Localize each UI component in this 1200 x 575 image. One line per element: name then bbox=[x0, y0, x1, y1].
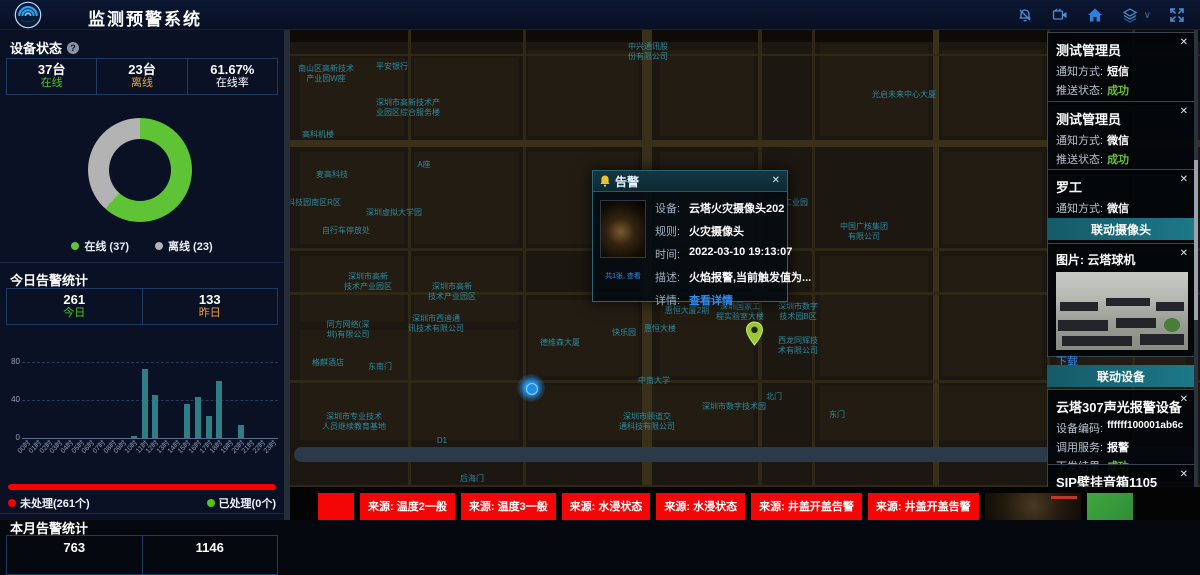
alert-ticker-bar: 来源: 温度2一般来源: 温度3一般来源: 水浸状态来源: 水浸状态来源: 井盖… bbox=[290, 487, 1200, 520]
bar-slot: 01时 bbox=[33, 352, 44, 438]
today-alarm-title: 今日告警统计 bbox=[10, 270, 88, 289]
bar-slot: 14时 bbox=[171, 352, 182, 438]
map-label: 东南门 bbox=[368, 362, 392, 372]
map-label: 中南大学 bbox=[638, 376, 670, 386]
notification-card: ✕ 测试管理员 通知方式:微信 推送状态:成功 bbox=[1047, 101, 1195, 176]
map-label: 深圳市数字技术园 bbox=[702, 402, 766, 412]
fullscreen-icon[interactable] bbox=[1168, 6, 1186, 24]
right-notification-panel: ✕ 测试管理员 通知方式:短信 推送状态:成功 ✕ 测试管理员 通知方式:微信 … bbox=[1047, 30, 1195, 520]
device-status-donut-chart bbox=[88, 118, 192, 222]
bar-slot: 16时 bbox=[193, 352, 204, 438]
page-title: 监测预警系统 bbox=[88, 5, 202, 30]
bar-slot: 15时 bbox=[182, 352, 193, 438]
app-logo-icon bbox=[14, 1, 42, 29]
close-icon[interactable]: ✕ bbox=[1180, 249, 1188, 259]
device-status-title: 设备状态 ? bbox=[10, 38, 79, 57]
bar bbox=[184, 404, 190, 438]
alert-ticker-item[interactable]: 来源: 井盖开盖告警 bbox=[868, 493, 979, 520]
bar-slot: 23时 bbox=[267, 352, 278, 438]
layers-icon[interactable] bbox=[1121, 6, 1139, 24]
ticker-snapshot-dark[interactable] bbox=[985, 493, 1081, 520]
bar bbox=[216, 381, 222, 438]
map-label: 快乐园 bbox=[612, 328, 636, 338]
bar-slot: 17时 bbox=[203, 352, 214, 438]
map-label: 深圳市高新 技术产业园区 bbox=[344, 272, 392, 292]
bar-slot: 21时 bbox=[246, 352, 257, 438]
map-label: 深圳市高新技术产 业园区综合服务楼 bbox=[376, 98, 440, 118]
bar-slot: 04时 bbox=[65, 352, 76, 438]
map-label: 北门 bbox=[766, 392, 782, 402]
map-label: 光启未来中心大厦 bbox=[872, 90, 936, 100]
stat-today: 261 今日 bbox=[7, 289, 143, 324]
map-label: 东门 bbox=[829, 410, 845, 420]
bar-slot: 12时 bbox=[150, 352, 161, 438]
linked-camera-card: ✕ 图片: 云塔球机 下载 bbox=[1047, 243, 1195, 357]
map-label: 同方网络(深 圳)有限公司 bbox=[327, 320, 370, 340]
map-label: 中国广核集团 有限公司 bbox=[840, 222, 888, 242]
camera-snapshot-image[interactable] bbox=[1056, 272, 1188, 350]
alarm-description: 火焰报警,当前触发值为... bbox=[689, 269, 811, 285]
bar bbox=[142, 369, 148, 438]
map-label: 自行车停放处 bbox=[322, 226, 370, 236]
unhandled-dot bbox=[8, 499, 16, 507]
bar-slot: 03时 bbox=[54, 352, 65, 438]
alert-ticker-item[interactable]: 来源: 温度3一般 bbox=[461, 493, 556, 520]
map-label: 深圳虚拟大学园 bbox=[366, 208, 422, 218]
alert-ticker-item[interactable]: 来源: 水浸状态 bbox=[656, 493, 745, 520]
map-label: 中兴通讯股 份有限公司 bbox=[628, 42, 668, 62]
alert-ticker-item[interactable]: 来源: 井盖开盖告警 bbox=[751, 493, 862, 520]
unhandled-progress-bar bbox=[8, 484, 276, 490]
home-icon[interactable] bbox=[1086, 6, 1104, 24]
offline-legend-dot bbox=[155, 242, 163, 250]
help-icon[interactable]: ? bbox=[67, 42, 79, 54]
alarm-popup-header: 告警 ✕ bbox=[593, 171, 787, 192]
map-label: 平安银行 bbox=[376, 62, 408, 72]
handled-dot bbox=[207, 499, 215, 507]
map-label: 深圳市高新 技术产业园区 bbox=[428, 282, 476, 302]
handled-legend: 未处理(261个) 已处理(0个) bbox=[8, 495, 276, 511]
map-label: A座 bbox=[417, 160, 430, 170]
linked-devices-header: 联动设备 bbox=[1047, 365, 1195, 387]
bar-slot: 06时 bbox=[86, 352, 97, 438]
alarm-location-pin[interactable] bbox=[745, 321, 764, 347]
map-label: 后海门 bbox=[460, 474, 484, 484]
alert-ticker-item[interactable]: 来源: 水浸状态 bbox=[562, 493, 651, 520]
donut-legend: 在线 (37) 离线 (23) bbox=[0, 238, 284, 254]
alert-ticker-item[interactable] bbox=[318, 493, 354, 520]
map-label: 深圳市专业技术 人员继续教育基地 bbox=[322, 412, 386, 432]
bar-slot: 00时 bbox=[22, 352, 33, 438]
stat-online: 37台 在线 bbox=[7, 59, 97, 94]
close-icon[interactable]: ✕ bbox=[1180, 395, 1188, 405]
alarm-snapshot-image[interactable] bbox=[600, 200, 646, 258]
bar-slot: 07时 bbox=[97, 352, 108, 438]
right-panel-scrollbar[interactable] bbox=[1194, 30, 1198, 520]
stat-yesterday: 133 昨日 bbox=[143, 289, 278, 324]
map-label: 高科机楼 bbox=[302, 130, 334, 140]
bar-slot: 10时 bbox=[129, 352, 140, 438]
map-label: 麦高科技 bbox=[316, 170, 348, 180]
close-icon[interactable]: ✕ bbox=[1180, 470, 1188, 480]
view-detail-link[interactable]: 查看详情 bbox=[689, 292, 733, 308]
alert-ticker-item[interactable]: 来源: 温度2一般 bbox=[360, 493, 455, 520]
bar-slot: 05时 bbox=[75, 352, 86, 438]
map-label: 科技园南区R区 bbox=[290, 198, 341, 208]
alarm-popup: 告警 ✕ 共1张, 查看 设备:云塔火灾摄像头202 规则:火灾摄像头 时间:2… bbox=[592, 170, 788, 302]
chevron-down-icon[interactable]: ∨ bbox=[1144, 10, 1151, 21]
map-label: 南山区高新技术 产业园W座 bbox=[298, 64, 354, 84]
bar-slot: 02时 bbox=[43, 352, 54, 438]
close-icon[interactable]: ✕ bbox=[772, 176, 780, 186]
bar-slot: 13时 bbox=[161, 352, 172, 438]
bar-slot: 19时 bbox=[225, 352, 236, 438]
bar-slot: 20时 bbox=[235, 352, 246, 438]
bar-slot: 09时 bbox=[118, 352, 129, 438]
linked-camera-header: 联动摄像头 bbox=[1047, 218, 1195, 240]
bar-slot: 11时 bbox=[139, 352, 150, 438]
map-label: 深圳市西迪通 讯技术有限公司 bbox=[408, 314, 464, 334]
today-alarm-table: 261 今日 133 昨日 bbox=[6, 288, 278, 325]
alarm-device: 云塔火灾摄像头202 bbox=[689, 200, 784, 216]
device-status-table: 37台 在线 23台 离线 61.67% 在线率 bbox=[6, 58, 278, 95]
device-location-dot[interactable] bbox=[517, 374, 545, 402]
bar-slot: 22时 bbox=[257, 352, 268, 438]
bar-slot: 08时 bbox=[107, 352, 118, 438]
alarm-time: 2022-03-10 19:13:07 bbox=[689, 246, 792, 262]
map-label: D1 bbox=[437, 436, 447, 446]
bar bbox=[206, 416, 212, 438]
bar bbox=[238, 425, 244, 438]
bar bbox=[152, 395, 158, 438]
map-label: 惠恒大楼 bbox=[644, 324, 676, 334]
map-label: 西龙同辉技 术有限公司 bbox=[778, 336, 818, 356]
bar bbox=[195, 397, 201, 438]
snapshot-view-link[interactable]: 共1张, 查看 bbox=[600, 271, 646, 281]
left-stats-panel: 设备状态 ? 37台 在线 23台 离线 61.67% 在线率 在线 (37) … bbox=[0, 30, 290, 520]
map-label: 德维森大厦 bbox=[540, 338, 580, 348]
stat-online-rate: 61.67% 在线率 bbox=[188, 59, 277, 94]
bar-slot: 18时 bbox=[214, 352, 225, 438]
map-label: 格麒酒店 bbox=[312, 358, 344, 368]
bell-muted-icon[interactable] bbox=[1016, 6, 1034, 24]
map-label: 深圳市颐道交 通科技有限公司 bbox=[619, 412, 675, 432]
video-camera-icon[interactable] bbox=[1051, 6, 1069, 24]
online-legend-dot bbox=[71, 242, 79, 250]
stat-offline: 23台 离线 bbox=[97, 59, 187, 94]
alarm-rule: 火灾摄像头 bbox=[689, 223, 744, 239]
notification-card: ✕ 测试管理员 通知方式:短信 推送状态:成功 bbox=[1047, 32, 1195, 107]
alarm-popup-title: 告警 bbox=[615, 173, 767, 190]
close-icon[interactable]: ✕ bbox=[1180, 175, 1188, 185]
top-header: 监测预警系统 ∨ bbox=[0, 0, 1200, 30]
month-alarm-table: 763 1146 bbox=[6, 535, 278, 575]
ticker-snapshot-green[interactable] bbox=[1087, 493, 1133, 520]
close-icon[interactable]: ✕ bbox=[1180, 107, 1188, 117]
hourly-alarm-bar-chart: 80 40 0 00时01时02时03时04时05时06时07时08时09时10… bbox=[22, 352, 278, 464]
close-icon[interactable]: ✕ bbox=[1180, 38, 1188, 48]
alarm-bell-icon bbox=[600, 175, 610, 187]
